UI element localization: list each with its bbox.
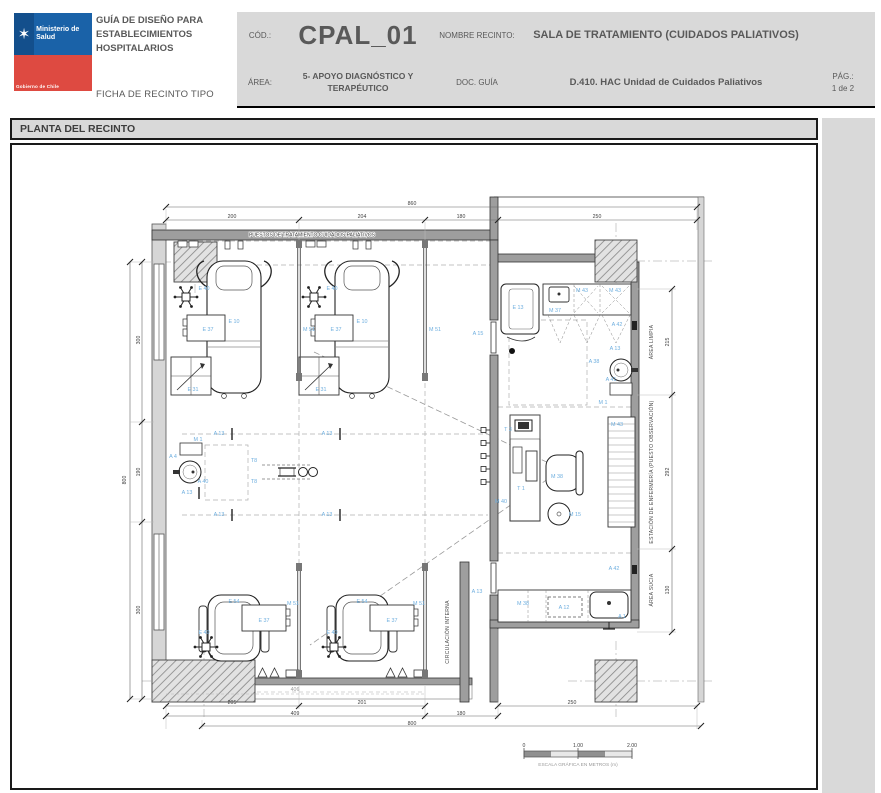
- plan-note: PUESTOS DE TRATAMIENTO CUIDADOS PALIATIV…: [249, 233, 376, 239]
- floor-plan: E 40E 10E 37E 31M 51E 40E 10E 37E 31M 51…: [12, 145, 816, 788]
- equipment-tag: E 13: [512, 305, 523, 311]
- dimension-label: 180: [457, 711, 466, 717]
- equipment-tag: M 37: [549, 308, 561, 314]
- scale-tick: 0: [523, 743, 526, 749]
- equipment-tag: M 51: [287, 601, 299, 607]
- equipment-tag: M 51: [413, 601, 425, 607]
- equipment-tag: E 10: [356, 319, 367, 325]
- equipment-tag: E 37: [258, 618, 269, 624]
- equipment-tag: M 40: [495, 499, 507, 505]
- scale-caption: ESCALA GRÁFICA EN METROS (m): [538, 761, 618, 768]
- partition: [296, 563, 302, 678]
- page-margin-strip: [822, 118, 875, 793]
- partition: [422, 240, 428, 381]
- equipment-tag: A 13: [322, 431, 333, 437]
- dirty-area: [498, 565, 637, 629]
- nombre-label: NOMBRE RECINTO:: [433, 30, 521, 41]
- equipment-tag: T8: [251, 458, 257, 464]
- dimension-label: 204: [358, 214, 367, 220]
- dimension-label: 860: [408, 201, 417, 207]
- dimension-label: 406: [291, 687, 300, 693]
- equipment-tag: M 43: [609, 288, 621, 294]
- equipment-tag: M 51: [429, 327, 441, 333]
- door-leaf: [491, 322, 496, 353]
- equipment-tag: E 54: [228, 599, 239, 605]
- dimension-label: 250: [593, 214, 602, 220]
- dimension-label: 300: [136, 606, 142, 615]
- dimension-label: 409: [291, 711, 300, 717]
- guide-title-block: GUÍA DE DISEÑO PARA ESTABLECIMIENTOS HOS…: [96, 14, 234, 102]
- header-info-table: CÓD.: CPAL_01 NOMBRE RECINTO: SALA DE TR…: [237, 12, 875, 108]
- equipment-tag: A 42: [612, 322, 623, 328]
- equipment-tag: A 13: [322, 512, 333, 518]
- equipment-tag: E 40: [198, 286, 209, 292]
- logo-blue-band: ✶ Ministerio de Salud: [14, 13, 92, 55]
- ministry-name: Ministerio de Salud: [34, 24, 92, 44]
- equipment-tag: E 37: [330, 327, 341, 333]
- shelving: [608, 417, 635, 527]
- dimension-label: 201: [358, 700, 367, 706]
- dimension-label: 292: [665, 468, 671, 477]
- equipment-tag: M 43: [576, 288, 588, 294]
- area-label: ÁREA LIMPIA: [648, 324, 655, 359]
- scale-bar: [524, 748, 632, 759]
- ficha-page: ✶ Ministerio de Salud Gobierno de Chile …: [0, 0, 881, 793]
- dimension-label: 130: [665, 586, 671, 595]
- dimension-label: 190: [136, 468, 142, 477]
- area-label: ESTACIÓN DE ENFERMERÍA (PUESTO OBSERVACI…: [648, 400, 655, 543]
- equipment-tag: T 3: [504, 427, 512, 433]
- equipment-tag: A 4: [169, 454, 177, 460]
- equipment-tag: A 13: [182, 490, 193, 496]
- waste-bin: [509, 348, 515, 354]
- equipment-tag: M 38: [517, 601, 529, 607]
- office-chair: [546, 455, 580, 491]
- equipment-tag: A 38: [589, 359, 600, 365]
- treatment-bays: [171, 240, 428, 678]
- dimension-label: 250: [568, 700, 577, 706]
- equipment-tag: E 10: [228, 319, 239, 325]
- dimension-label: 300: [136, 336, 142, 345]
- page-indicator: PÁG.: 1 de 2: [811, 70, 875, 94]
- equipment-tag: T8: [251, 479, 257, 485]
- equipment-tag: M 38: [551, 474, 563, 480]
- scale-tick: 2.00: [627, 743, 637, 749]
- equipment-tag: A 12: [559, 605, 570, 611]
- dimension-label: 180: [457, 214, 466, 220]
- door-leaf: [491, 563, 496, 593]
- equipment-tag: M 43: [611, 422, 623, 428]
- equipment-tag: A 1: [618, 614, 626, 620]
- nombre-value: SALA DE TRATAMIENTO (CUIDADOS PALIATIVOS…: [521, 28, 811, 44]
- dimension-label: 800: [408, 721, 417, 727]
- government-name: Gobierno de Chile: [14, 84, 59, 91]
- pag-value: 1 de 2: [813, 83, 873, 94]
- partition: [422, 563, 428, 678]
- equipment-tag: A 40: [198, 479, 209, 485]
- equipment-tag: E 37: [386, 618, 397, 624]
- column: [152, 660, 255, 702]
- equipment-tag: A 42: [609, 566, 620, 572]
- equipment-tag: M 1: [599, 400, 608, 406]
- dimension-label: 800: [122, 476, 128, 485]
- equipment-tag: E 31: [315, 387, 326, 393]
- equipment-tag: M 1: [194, 437, 203, 443]
- section-title-bar: PLANTA DEL RECINTO: [10, 118, 818, 140]
- dimension-label: 200: [228, 214, 237, 220]
- doc-label: DOC. GUÍA: [433, 77, 521, 88]
- guide-title: GUÍA DE DISEÑO PARA ESTABLECIMIENTOS HOS…: [96, 14, 234, 55]
- doc-value: D.410. HAC Unidad de Cuidados Paliativos: [521, 76, 811, 89]
- dimension-label: 205: [228, 700, 237, 706]
- sheet-type: FICHA DE RECINTO TIPO: [96, 89, 214, 100]
- stool: [548, 503, 570, 525]
- equipment-tag: A 13: [610, 346, 621, 352]
- equipment-tag: A 13: [214, 512, 225, 518]
- area-label: ÁREA SUCIA: [648, 573, 655, 606]
- equipment-tag: A 13: [472, 589, 483, 595]
- equipment-tag: A 15: [473, 331, 484, 337]
- equipment-tag: A 41: [606, 377, 617, 383]
- equipment-tag: A 13: [214, 431, 225, 437]
- dispenser: [632, 321, 637, 330]
- dispenser: [632, 565, 637, 574]
- logo-red-band: Gobierno de Chile: [14, 55, 92, 91]
- equipment-tag: M 51: [303, 327, 315, 333]
- equipment-tag: E 54: [356, 599, 367, 605]
- dimension-label: 215: [665, 338, 671, 347]
- column: [595, 660, 637, 702]
- clean-area: [501, 284, 638, 395]
- section-title: PLANTA DEL RECINTO: [20, 123, 135, 135]
- equipment-tag: E 37: [202, 327, 213, 333]
- area-label: ÁREA:: [237, 77, 283, 88]
- plan-frame: E 40E 10E 37E 31M 51E 40E 10E 37E 31M 51…: [10, 143, 818, 790]
- equipment-tag: T 1: [517, 486, 525, 492]
- equipment-tag: M 15: [569, 512, 581, 518]
- trolley: [262, 465, 318, 479]
- chile-coat-of-arms-icon: ✶: [14, 13, 34, 55]
- area-value: 5- APOYO DIAGNÓSTICO Y TERAPÉUTICO: [283, 70, 433, 94]
- scale-tick: 1.00: [573, 743, 583, 749]
- ministry-logo: ✶ Ministerio de Salud Gobierno de Chile: [14, 13, 92, 91]
- pag-label: PÁG.:: [813, 71, 873, 82]
- equipment-tag: E 40: [198, 630, 209, 636]
- equipment-tag: E 40: [326, 286, 337, 292]
- area-label: CIRCULACIÓN INTERNA: [444, 600, 451, 664]
- equipment-tag: E 40: [326, 630, 337, 636]
- equipment-tag: E 31: [187, 387, 198, 393]
- cod-value: CPAL_01: [283, 19, 433, 52]
- cod-label: CÓD.:: [237, 30, 283, 41]
- column: [595, 240, 637, 282]
